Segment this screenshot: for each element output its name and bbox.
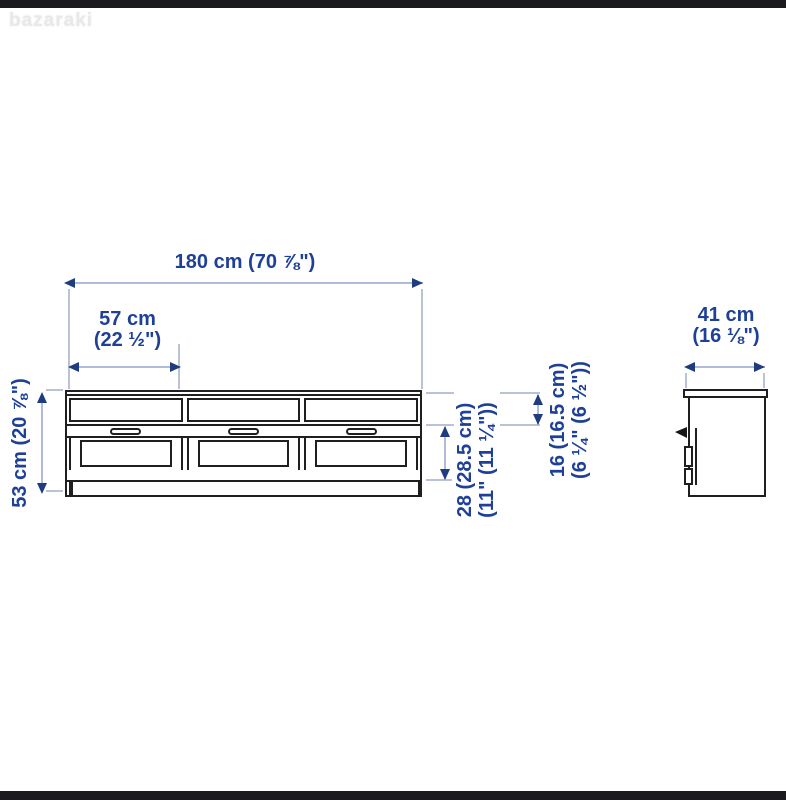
plinth-box bbox=[71, 482, 420, 495]
label-total-height: 53 cm (20 ⅞") bbox=[9, 355, 39, 531]
arrowhead-up-icon bbox=[533, 394, 543, 405]
watermark-text: bazaraki bbox=[9, 10, 93, 32]
drawer-handle bbox=[228, 428, 259, 435]
drawer-panel bbox=[198, 440, 290, 467]
arrowhead-left-icon bbox=[684, 362, 695, 372]
dimension-line-53 bbox=[41, 394, 43, 489]
dimension-line-180 bbox=[67, 282, 423, 284]
shelf-opening bbox=[69, 398, 183, 422]
label-drawer-width: 57 cm (22 ½") bbox=[50, 309, 205, 351]
label-depth-in: (16 ⅛") bbox=[665, 326, 786, 347]
label-depth: 41 cm (16 ⅛") bbox=[665, 305, 786, 347]
drawer bbox=[304, 438, 418, 470]
label-drawer-height-in: (11" (11 ¼")) bbox=[476, 368, 498, 552]
shelf-opening bbox=[187, 398, 301, 422]
dimension-diagram: bazaraki 180 cm (70 ⅞") 57 cm (22 ½") 53… bbox=[0, 0, 786, 800]
side-rail-strip bbox=[684, 468, 693, 485]
side-rail-strip bbox=[684, 446, 693, 467]
arrowhead-up-icon bbox=[37, 392, 47, 403]
arrowhead-down-icon bbox=[37, 483, 47, 494]
dimension-line-57 bbox=[70, 366, 180, 368]
label-drawer-height: 28 (28.5 cm) (11" (11 ¼")) bbox=[454, 368, 500, 552]
label-depth-cm: 41 cm bbox=[665, 305, 786, 326]
label-total-width: 180 cm (70 ⅞") bbox=[120, 252, 370, 273]
label-drawer-height-cm: 28 (28.5 cm) bbox=[454, 368, 476, 552]
arrowhead-right-icon bbox=[170, 362, 181, 372]
label-drawer-width-in: (22 ½") bbox=[50, 330, 205, 351]
drawer bbox=[187, 438, 301, 470]
label-shelf-height-in: (6 ¼" (6 ½")) bbox=[569, 328, 591, 512]
arrowhead-down-icon bbox=[533, 414, 543, 425]
label-shelf-height: 16 (16.5 cm) (6 ¼" (6 ½")) bbox=[547, 328, 593, 512]
side-drawer-edge bbox=[695, 428, 697, 485]
arrowhead-left-icon bbox=[68, 362, 79, 372]
drawer-panel bbox=[315, 440, 407, 467]
bottom-rail bbox=[67, 470, 420, 482]
arrowhead-right-icon bbox=[754, 362, 765, 372]
drawer-handle bbox=[110, 428, 141, 435]
plinth bbox=[67, 482, 420, 495]
shelf-opening bbox=[304, 398, 418, 422]
extension-line-41-right bbox=[763, 373, 765, 388]
arrowhead-right-icon bbox=[412, 278, 423, 288]
arrowhead-up-icon bbox=[440, 426, 450, 437]
arrowhead-left-icon bbox=[64, 278, 75, 288]
side-handle-icon bbox=[675, 427, 687, 438]
drawer-handle bbox=[346, 428, 377, 435]
extension-line-41-left bbox=[685, 373, 687, 388]
drawer-panel bbox=[80, 440, 172, 467]
shelf-row bbox=[67, 396, 420, 424]
drawer-row bbox=[67, 438, 420, 470]
label-shelf-height-cm: 16 (16.5 cm) bbox=[547, 328, 569, 512]
top-bar bbox=[0, 0, 786, 8]
extension-line-53-bottom bbox=[46, 490, 63, 492]
drawer bbox=[69, 438, 183, 470]
extension-line-53-top bbox=[46, 389, 63, 391]
bottom-bar bbox=[0, 791, 786, 800]
side-body bbox=[688, 396, 766, 497]
front-view bbox=[65, 390, 422, 497]
arrowhead-down-icon bbox=[440, 469, 450, 480]
label-drawer-width-cm: 57 cm bbox=[50, 309, 205, 330]
handle-rail bbox=[67, 424, 420, 438]
extension-line-180-right bbox=[421, 289, 423, 389]
